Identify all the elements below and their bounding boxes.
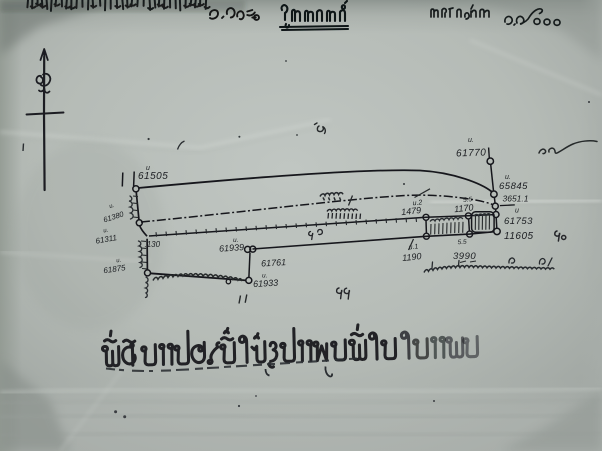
svg-text:u.: u. [116, 258, 122, 265]
svg-text:3651.1: 3651.1 [503, 194, 529, 204]
svg-text:65845: 65845 [499, 181, 528, 192]
svg-text:u.: u. [468, 137, 474, 144]
svg-text:.130: .130 [145, 240, 161, 249]
svg-text:u: u [515, 208, 519, 215]
svg-text:61753: 61753 [504, 216, 533, 227]
svg-text:1479: 1479 [401, 205, 422, 217]
svg-text:u.2: u.2 [412, 199, 423, 207]
svg-text:u.: u. [505, 174, 511, 181]
svg-text:61505: 61505 [138, 171, 168, 182]
svg-text:61761: 61761 [261, 257, 287, 268]
svg-text:u.: u. [262, 273, 268, 280]
svg-text:u.: u. [103, 228, 109, 235]
svg-text:1190: 1190 [402, 251, 422, 263]
svg-text:u.: u. [233, 237, 239, 244]
svg-text:61939: 61939 [219, 242, 245, 254]
svg-text:5.5: 5.5 [457, 239, 467, 247]
svg-text:3990: 3990 [453, 251, 476, 262]
svg-text:11605: 11605 [504, 231, 534, 242]
svg-text:5.5: 5.5 [463, 196, 473, 204]
svg-text:61770: 61770 [456, 147, 487, 159]
svg-text:1170: 1170 [454, 202, 474, 214]
svg-text:u: u [146, 165, 150, 172]
